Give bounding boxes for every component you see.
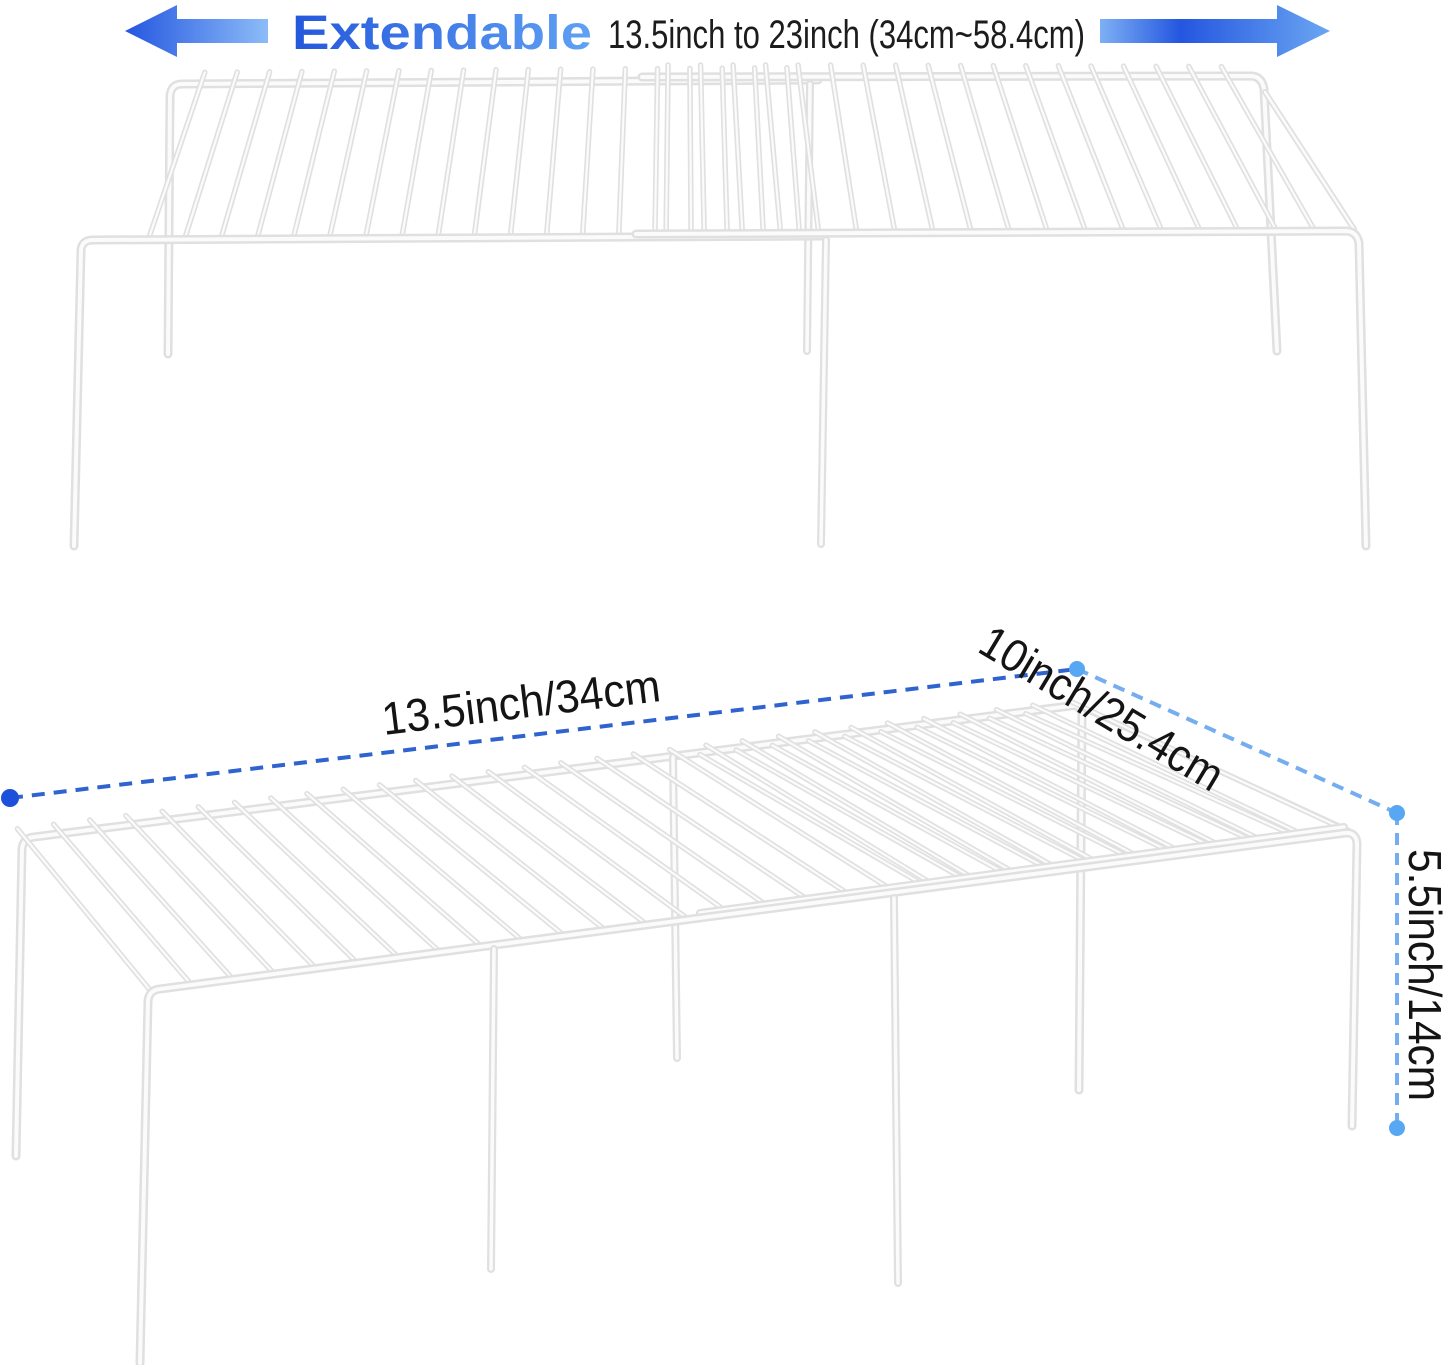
back-rail xyxy=(16,706,1082,1156)
mesh-wire xyxy=(148,72,205,239)
mesh-wire xyxy=(561,763,772,909)
scene: Extendable 13.5inch to 23inch (34cm~58.4… xyxy=(0,0,1445,1365)
length-endpoint-dot xyxy=(1,789,19,807)
mesh-wire xyxy=(831,65,857,233)
mesh-wire xyxy=(126,816,274,974)
front-rail-left-section xyxy=(74,236,822,546)
front-rail-right-section xyxy=(636,231,1366,546)
mesh-wire xyxy=(787,68,800,237)
extendable-title: Extendable xyxy=(292,7,592,60)
collapsed-rack-illustration xyxy=(16,701,1357,1363)
height-bottom-dot xyxy=(1389,1120,1405,1136)
front-rail-right-section xyxy=(636,231,1366,546)
mesh-wire xyxy=(1026,66,1086,232)
arrow-right-icon xyxy=(1100,5,1330,57)
mesh-wire xyxy=(307,794,482,947)
mesh-wire xyxy=(1058,66,1124,232)
mesh-wire xyxy=(896,65,934,233)
mesh-wire xyxy=(1124,66,1201,232)
mesh-wire xyxy=(162,811,316,968)
height-dimension-label: 5.5inch/14cm xyxy=(1399,849,1445,1101)
mesh-wire xyxy=(546,69,560,237)
mesh-wire xyxy=(329,71,366,239)
mesh-wire xyxy=(1156,66,1238,231)
size-range-label: 13.5inch to 23inch (34cm~58.4cm) xyxy=(608,13,1085,57)
mesh-wire xyxy=(690,68,691,237)
corner-front-right-dot xyxy=(1389,805,1405,821)
mesh-wire xyxy=(365,71,399,239)
mesh-wire xyxy=(198,807,357,963)
mesh-wire xyxy=(1091,66,1162,232)
side-edge-right xyxy=(1265,92,1354,229)
mesh-wire xyxy=(235,802,399,957)
mesh-wire xyxy=(402,70,432,238)
arrow-left-icon xyxy=(125,5,268,57)
extended-rack-illustration xyxy=(74,65,1366,546)
front-rail-inner-section xyxy=(700,827,1344,913)
mesh-wire xyxy=(597,758,813,903)
mesh-wire xyxy=(766,65,781,233)
product-dimension-image: Extendable 13.5inch to 23inch (34cm~58.4… xyxy=(0,0,1445,1365)
mesh-wire xyxy=(928,65,971,232)
mesh-wire xyxy=(90,820,233,979)
mesh-wire xyxy=(583,69,593,237)
mesh-wire xyxy=(863,65,895,233)
length-dimension-label: 13.5inch/34cm xyxy=(379,659,663,745)
mesh-wire xyxy=(733,65,742,234)
mesh-wire xyxy=(271,798,440,952)
mesh-wire xyxy=(474,70,496,238)
header: Extendable 13.5inch to 23inch (34cm~58.4… xyxy=(125,5,1330,60)
front-rail-left-section xyxy=(74,236,822,546)
mesh-wire xyxy=(438,70,464,238)
mesh-wire xyxy=(510,70,528,238)
mesh-wire xyxy=(755,68,764,237)
mesh-wire xyxy=(293,71,334,239)
front-rail xyxy=(140,833,1357,1363)
